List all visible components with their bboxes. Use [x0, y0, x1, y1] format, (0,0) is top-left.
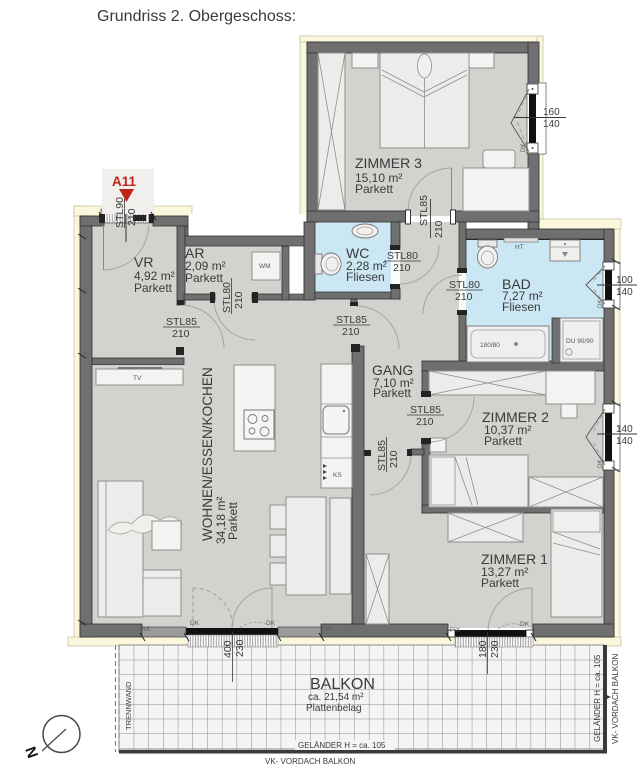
svg-text:FIX: FIX [140, 626, 151, 633]
svg-text:GELÄNDER H = ca. 105: GELÄNDER H = ca. 105 [298, 741, 386, 750]
svg-text:Parkett: Parkett [134, 281, 173, 295]
svg-text:DK: DK [598, 460, 604, 468]
svg-text:210: 210 [416, 416, 434, 428]
svg-text:DK: DK [521, 144, 527, 152]
svg-text:STL85: STL85 [166, 316, 197, 328]
svg-text:DK: DK [190, 620, 200, 627]
svg-text:Fliesen: Fliesen [502, 300, 541, 314]
svg-text:140: 140 [616, 424, 633, 435]
svg-text:210: 210 [342, 326, 360, 338]
svg-text:BALKON: BALKON [310, 676, 375, 693]
svg-text:FIX: FIX [450, 627, 461, 634]
svg-text:160: 160 [543, 107, 560, 118]
svg-text:140: 140 [616, 287, 633, 298]
svg-text:140: 140 [543, 119, 560, 130]
svg-text:Parkett: Parkett [355, 182, 394, 196]
svg-text:210: 210 [172, 328, 190, 340]
svg-text:210: 210 [233, 291, 245, 309]
svg-text:DK: DK [266, 620, 276, 627]
svg-text:Fliesen: Fliesen [346, 270, 385, 284]
svg-text:180/80: 180/80 [480, 342, 500, 349]
svg-text:Parkett: Parkett [481, 576, 520, 590]
svg-text:STL80: STL80 [449, 279, 480, 291]
svg-text:TV: TV [133, 375, 142, 382]
svg-text:Parkett: Parkett [185, 271, 224, 285]
svg-text:TRENNWAND: TRENNWAND [124, 681, 133, 730]
svg-text:230: 230 [489, 640, 501, 658]
svg-text:Plattenbelag: Plattenbelag [306, 703, 362, 714]
svg-text:HT: HT [515, 244, 524, 251]
svg-text:210: 210 [126, 208, 138, 226]
svg-text:ZIMMER 3: ZIMMER 3 [355, 155, 422, 171]
svg-text:STL85: STL85 [410, 404, 441, 416]
svg-text:FIX: FIX [322, 626, 333, 633]
svg-text:STL85: STL85 [418, 195, 430, 226]
svg-text:140: 140 [616, 436, 633, 447]
svg-text:210: 210 [393, 262, 411, 274]
svg-text:100: 100 [616, 275, 633, 286]
svg-text:WOHNEN/ESSEN/KOCHEN: WOHNEN/ESSEN/KOCHEN [200, 367, 215, 541]
svg-text:230: 230 [234, 639, 246, 657]
svg-text:Parkett: Parkett [373, 386, 412, 400]
svg-text:DU 90/90: DU 90/90 [566, 338, 594, 345]
svg-text:KS: KS [333, 472, 342, 479]
svg-text:STL80: STL80 [387, 250, 418, 262]
svg-text:210: 210 [455, 291, 473, 303]
svg-text:GELÄNDER H = ca. 105: GELÄNDER H = ca. 105 [593, 654, 602, 742]
svg-text:VK- VORDACH BALKON: VK- VORDACH BALKON [611, 654, 620, 744]
svg-text:DK: DK [598, 300, 604, 308]
svg-text:210: 210 [433, 220, 445, 238]
svg-text:Parkett: Parkett [226, 501, 240, 540]
svg-text:A11: A11 [112, 174, 137, 189]
svg-text:STL85: STL85 [336, 314, 367, 326]
svg-text:ca. 21,54 m²: ca. 21,54 m² [308, 692, 364, 703]
svg-text:VK- VORDACH BALKON: VK- VORDACH BALKON [265, 757, 355, 766]
svg-text:210: 210 [388, 450, 400, 468]
svg-text:Grundriss 2. Obergeschoss:: Grundriss 2. Obergeschoss: [97, 8, 296, 25]
svg-text:Parkett: Parkett [484, 434, 523, 448]
svg-text:DK: DK [520, 621, 530, 628]
svg-text:VR: VR [134, 254, 153, 270]
svg-text:WM: WM [259, 263, 271, 270]
